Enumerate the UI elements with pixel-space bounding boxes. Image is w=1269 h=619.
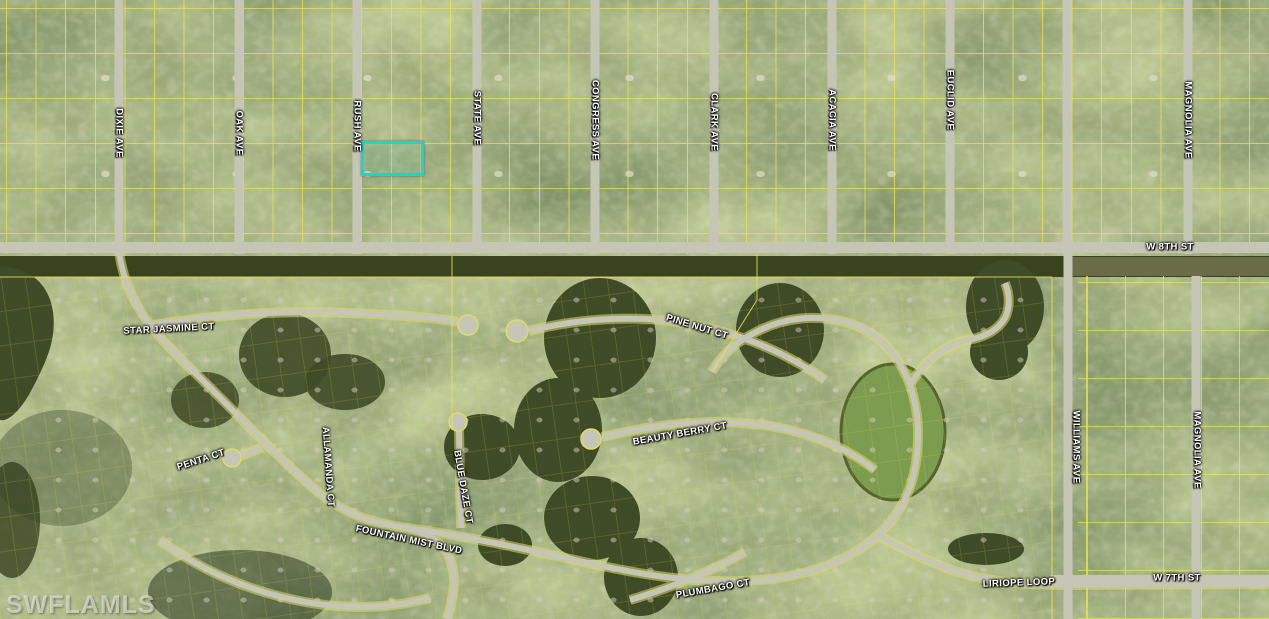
street-label-magnolia-ave-n: MAGNOLIA AVE [1183,81,1194,158]
street-label-clark-ave: CLARK AVE [709,93,720,151]
avenue-roads [0,0,1269,619]
mls-watermark: SWFLAMLS [6,591,156,619]
map-canvas[interactable]: DIXIE AVE OAK AVE RUSH AVE STATE AVE CON… [0,0,1269,619]
street-label-magnolia-ave-s: MAGNOLIA AVE [1192,411,1203,488]
cul-de-sacs [223,315,601,467]
street-label-williams-ave: WILLIAMS AVE [1071,411,1082,484]
street-label-euclid-ave: EUCLID AVE [945,70,956,130]
street-label-dixie-ave: DIXIE AVE [114,108,125,158]
plat-boundaries [0,253,1052,619]
street-label-w-7th-st: W 7TH ST [1153,573,1201,584]
street-label-oak-ave: OAK AVE [234,110,245,155]
subject-parcel-highlight[interactable] [361,141,424,176]
road-layer [0,0,1269,619]
street-label-rush-ave: RUSH AVE [352,100,363,151]
street-label-w-8th-st: W 8TH ST [1146,242,1194,253]
w-8th-st-road [0,242,1269,253]
street-label-acacia-ave: ACACIA AVE [827,89,838,151]
street-label-state-ave: STATE AVE [472,91,483,145]
street-label-congress-ave: CONGRESS AVE [590,80,601,160]
